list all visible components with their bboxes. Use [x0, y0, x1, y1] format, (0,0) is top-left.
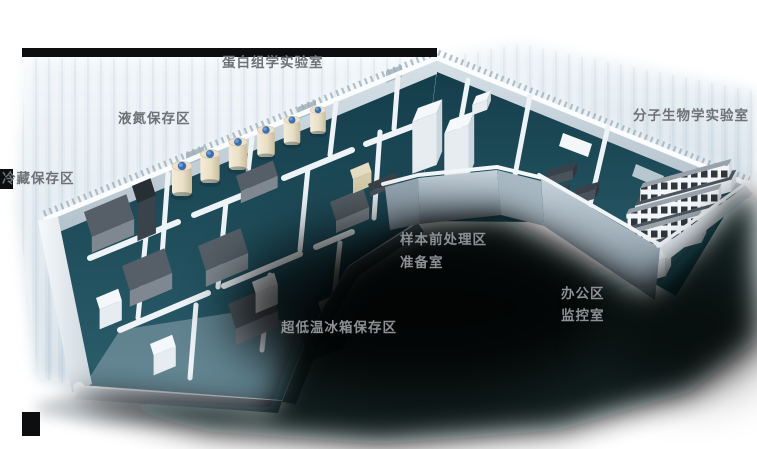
area-label-office: 办公区 [561, 285, 605, 302]
ln2-tank [199, 179, 220, 187]
floorplan-rendering [0, 0, 757, 449]
lab-floorplan-3d-scene: 蛋白组学实验室 液氮保存区 冷藏保存区 分子生物学实验室 样本前处理区 准备室 … [0, 0, 757, 449]
ln2-tank [171, 192, 193, 200]
ln2-tank [309, 131, 326, 137]
ln2-tank [263, 127, 267, 131]
junction-cabinet [412, 113, 436, 174]
ln2-tank [256, 153, 275, 160]
area-label-molecular-biology: 分子生物学实验室 [633, 107, 749, 124]
area-label-liquid-nitrogen: 液氮保存区 [118, 110, 191, 127]
area-label-monitoring-room: 监控室 [561, 307, 605, 324]
ln2-tank [283, 142, 301, 149]
ln2-tank [289, 117, 292, 120]
area-label-sample-pretreatment: 样本前处理区 [400, 231, 487, 248]
area-label-preparation-room: 准备室 [400, 254, 444, 271]
storage-rack [137, 195, 155, 241]
ln2-tank [228, 166, 248, 173]
area-label-cold-storage: 冷藏保存区 [2, 170, 75, 187]
ln2-tank [207, 151, 211, 155]
area-label-proteomics-lab: 蛋白组学实验室 [222, 54, 324, 71]
area-label-ultralow-freezer: 超低温冰箱保存区 [281, 319, 397, 336]
ln2-tank [316, 107, 319, 110]
ln2-tank [235, 139, 239, 143]
bottom-left-chip [22, 412, 40, 436]
ln2-tank [179, 163, 183, 167]
